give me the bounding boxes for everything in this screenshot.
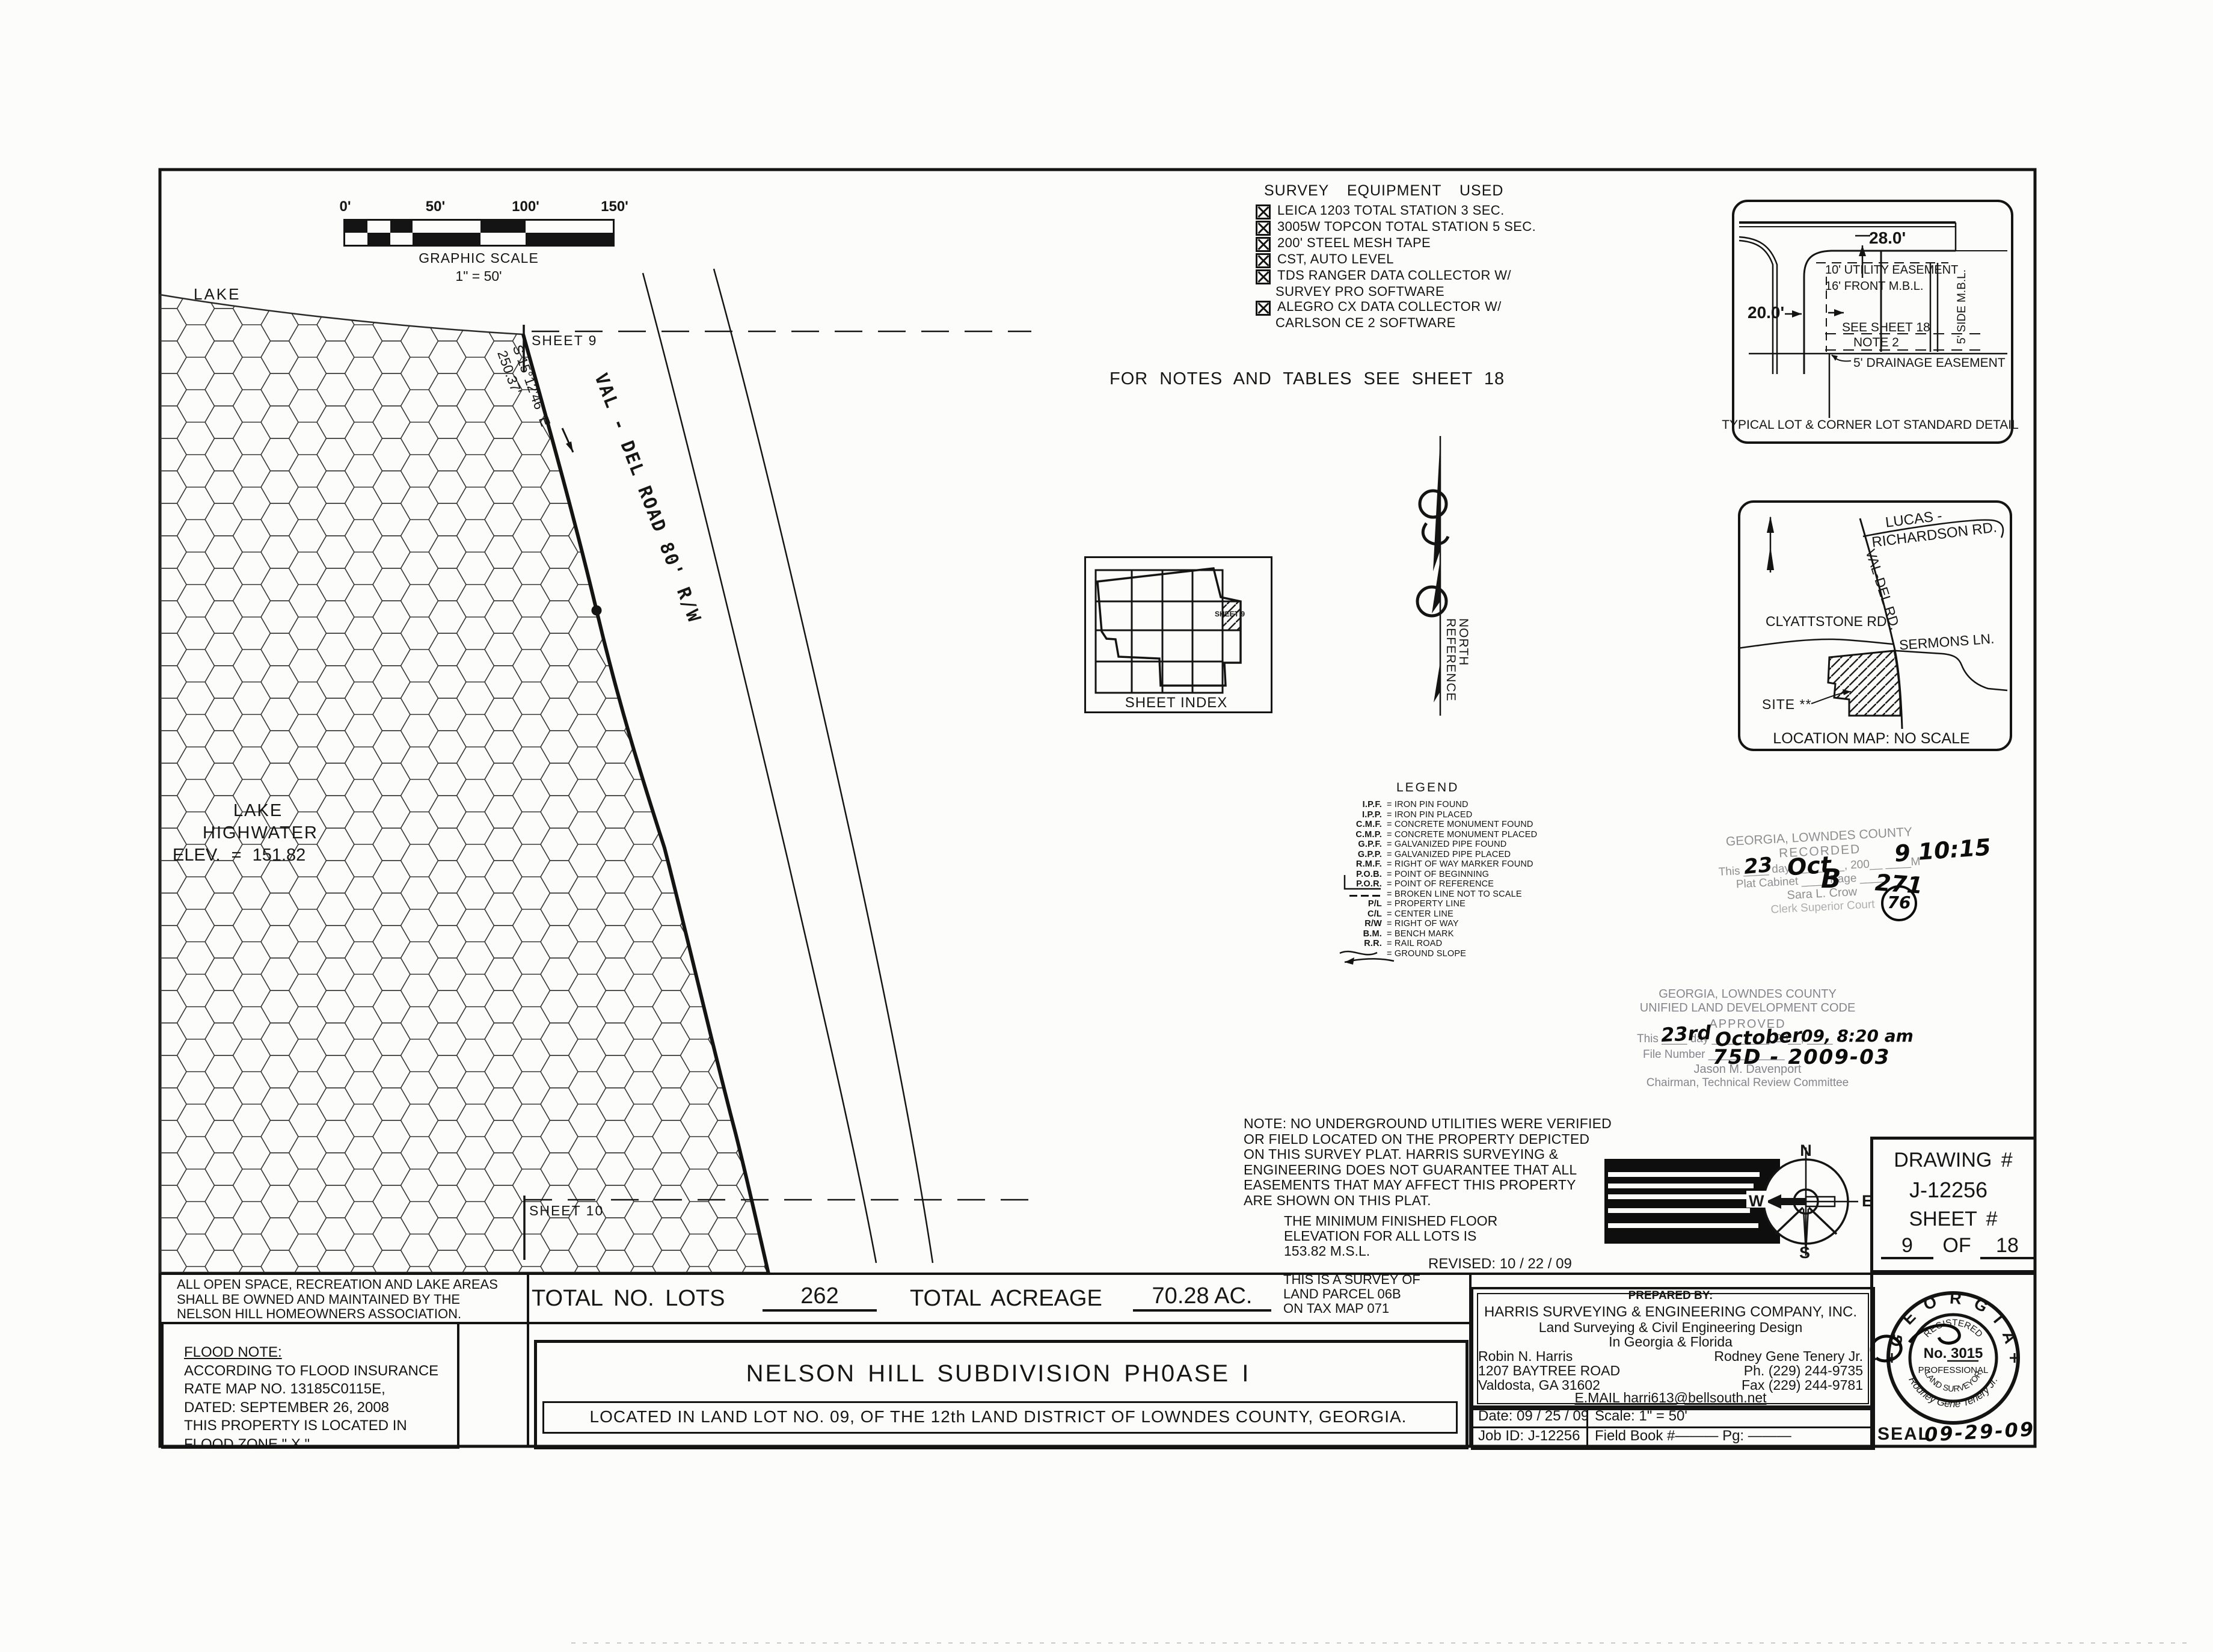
recorded-hw-day: 23 [1743, 853, 1773, 879]
phone: Ph. (229) 244-9735 [1744, 1363, 1863, 1379]
equipment-item: TDS RANGER DATA COLLECTOR W/ [1277, 268, 1511, 284]
scale-caption: GRAPHIC SCALE [419, 250, 539, 266]
recorded-hw-cabinet: B [1821, 864, 1841, 894]
seal-number: No. 3015 [1924, 1345, 1983, 1362]
flood-note-box: FLOOD NOTE: ACCORDING TO FLOOD INSURANCE… [161, 1322, 459, 1449]
scale-bar [343, 219, 615, 247]
legend-abbr: R.M.F. [1348, 859, 1382, 870]
sheet-of: OF [1939, 1234, 1974, 1257]
checkbox-checked-icon [1256, 301, 1271, 316]
legend-abbr: G.P.F. [1348, 840, 1382, 850]
reference-north-line2: NORTH [1457, 618, 1470, 702]
approved-chairman-title: Chairman, Technical Review Committee [1637, 1076, 1858, 1090]
flood-note-line: RATE MAP NO. 13185C0115E, [184, 1380, 438, 1399]
compass-east-label: E [1862, 1192, 1873, 1211]
total-lots-label: TOTAL NO. LOTS [532, 1286, 725, 1312]
prepared-by-label: PREPARED BY: [1628, 1289, 1713, 1303]
equipment-title: SURVEY EQUIPMENT USED [1264, 182, 1592, 200]
survey-of-line: THIS IS A SURVEY OF [1283, 1273, 1420, 1287]
recorded-hw-monogram: 76 [1881, 885, 1917, 921]
legend-text: = BENCH MARK [1387, 929, 1454, 939]
floor-elevation-note: THE MINIMUM FINISHED FLOOR ELEVATION FOR… [1284, 1214, 1497, 1259]
principal-right: Rodney Gene Tenery Jr. [1714, 1348, 1863, 1365]
legend-abbr: C/L [1348, 909, 1382, 920]
compass-rose [1604, 1147, 1858, 1256]
checkbox-checked-icon [1256, 269, 1271, 284]
detail-dim-28: 28.0' [1869, 229, 1906, 248]
detail-caption: TYPICAL LOT & CORNER LOT STANDARD DETAIL [1722, 418, 2019, 432]
company-name: HARRIS SURVEYING & ENGINEERING COMPANY, … [1484, 1304, 1857, 1321]
detail-see-sheet: SEE SHEET 18 [1842, 321, 1930, 335]
locmap-caption: LOCATION MAP: NO SCALE [1773, 730, 1969, 748]
open-space-line: ALL OPEN SPACE, RECREATION AND LAKE AREA… [177, 1277, 498, 1292]
lake-label: LAKE [194, 285, 241, 304]
legend-abbr: R/W [1348, 919, 1382, 929]
legend-abbr: G.P.P. [1348, 850, 1382, 860]
utility-note: NOTE: NO UNDERGROUND UTILITIES WERE VERI… [1244, 1116, 1612, 1208]
utility-note-line: EASEMENTS THAT MAY AFFECT THIS PROPERTY [1244, 1178, 1612, 1193]
approved-hw-yeartime: 09, 8:20 am [1801, 1026, 1914, 1046]
point-marker [592, 606, 601, 615]
legend-text: = CENTER LINE [1387, 909, 1453, 920]
utility-note-line: OR FIELD LOCATED ON THE PROPERTY DEPICTE… [1244, 1132, 1612, 1147]
plat-sheet: G E O R G I A Rodney Gene Tenery Jr. REG… [0, 0, 2213, 1652]
principal-left: Robin N. Harris [1478, 1348, 1573, 1365]
legend-text: = GALVANIZED PIPE PLACED [1387, 850, 1511, 860]
approved-hw-file: 75D - 2009-03 [1713, 1045, 1890, 1069]
legend-abbr: I.P.P. [1348, 810, 1382, 820]
checkbox-checked-icon [1256, 204, 1271, 220]
detail-utility-easement: 10' UTILITY EASEMENT [1825, 263, 1958, 277]
compass-west-label: W [1749, 1192, 1764, 1211]
flood-note-line: THIS PROPERTY IS LOCATED IN [184, 1417, 438, 1436]
scale-tick-50: 50' [426, 198, 445, 215]
legend-text: = GALVANIZED PIPE FOUND [1387, 840, 1506, 850]
drawing-number-value: J-12256 [1909, 1178, 1987, 1203]
detail-note-2: NOTE 2 [1853, 336, 1899, 350]
notes-banner: FOR NOTES AND TABLES SEE SHEET 18 [1110, 369, 1505, 389]
approved-line2: UNIFIED LAND DEVELOPMENT CODE [1637, 1001, 1858, 1015]
equipment-item: ALEGRO CX DATA COLLECTOR W/ [1277, 299, 1502, 316]
flood-note: FLOOD NOTE: ACCORDING TO FLOOD INSURANCE… [184, 1343, 438, 1454]
total-lots-value: 262 [763, 1283, 877, 1312]
compass-north-label: N [1800, 1141, 1812, 1160]
scale-tick-150: 150' [601, 198, 628, 215]
legend-abbr: C.M.F. [1348, 820, 1382, 830]
surveyor-seal: G E O R G I A Rodney Gene Tenery Jr. REG… [1871, 1289, 2021, 1423]
legend-text: = CONCRETE MONUMENT FOUND [1387, 820, 1533, 830]
legend-text: = CONCRETE MONUMENT PLACED [1387, 830, 1537, 840]
legend-abbr: I.P.F. [1348, 800, 1382, 810]
approved-hw-day: 23rd [1660, 1021, 1711, 1046]
date-field: Date: 09 / 25 / 09 [1478, 1408, 1589, 1425]
survey-of-note: THIS IS A SURVEY OF LAND PARCEL 06B ON T… [1283, 1273, 1420, 1316]
utility-note-line: ON THIS SURVEY PLAT. HARRIS SURVEYING & [1244, 1147, 1612, 1162]
approved-line1: GEORGIA, LOWNDES COUNTY [1637, 987, 1858, 1001]
equipment-list: SURVEY EQUIPMENT USED LEICA 1203 TOTAL S… [1256, 182, 1592, 330]
scale-ratio: 1" = 50' [455, 268, 502, 284]
legend-abbr: P/L [1348, 899, 1382, 909]
drawing-box-bottom [1870, 1270, 2035, 1273]
legend: LEGEND I.P.F.= IRON PIN FOUND I.P.P.= IR… [1348, 781, 1601, 959]
equipment-item-cont: SURVEY PRO SOFTWARE [1275, 284, 1444, 299]
field-book-field: Field Book #——— Pg: ——— [1595, 1428, 1791, 1445]
sheet-number-value: 9 [1881, 1234, 1933, 1259]
legend-abbr: B.M. [1348, 929, 1382, 939]
legend-title: LEGEND [1396, 781, 1601, 795]
scale-field: Scale: 1" = 50' [1595, 1408, 1687, 1425]
floor-note-line: ELEVATION FOR ALL LOTS IS [1284, 1229, 1497, 1244]
equipment-item: LEICA 1203 TOTAL STATION 3 SEC. [1277, 203, 1505, 220]
wave-line-icon [1348, 949, 1382, 959]
sheet-index-caption: SHEET INDEX [1125, 695, 1228, 711]
broken-line-icon [1349, 895, 1382, 897]
lake-hw-line1: LAKE [233, 801, 283, 821]
total-acreage-label: TOTAL ACREAGE [910, 1286, 1102, 1312]
legend-abbr: P.O.R. [1348, 879, 1382, 889]
total-acreage-value: 70.28 AC. [1133, 1283, 1271, 1312]
utility-note-line: NOTE: NO UNDERGROUND UTILITIES WERE VERI… [1244, 1116, 1612, 1132]
legend-text: = IRON PIN FOUND [1387, 800, 1469, 810]
legend-abbr: P.O.B. [1348, 870, 1382, 880]
equipment-item: CST, AUTO LEVEL [1277, 252, 1394, 268]
legend-text: = POINT OF REFERENCE [1387, 879, 1494, 889]
legend-text: = GROUND SLOPE [1387, 949, 1466, 959]
locmap-site: SITE ** [1762, 696, 1811, 713]
flood-note-line: DATED: SEPTEMBER 26, 2008 [184, 1399, 438, 1417]
detail-drainage-easement: 5' DRAINAGE EASEMENT [1853, 356, 2006, 370]
utility-note-line: ENGINEERING DOES NOT GUARANTEE THAT ALL [1244, 1162, 1612, 1178]
compass-south-label: S [1799, 1244, 1810, 1262]
sheet-number-label: SHEET # [1909, 1208, 1997, 1231]
lake-hatch-area [160, 295, 769, 1273]
legend-text: = PROPERTY LINE [1387, 899, 1466, 909]
job-id-field: Job ID: J-12256 [1478, 1428, 1580, 1445]
seal-professional: PROFESSIONAL [1918, 1365, 1989, 1375]
survey-of-line: ON TAX MAP 071 [1283, 1301, 1420, 1316]
equipment-item: 3005W TOPCON TOTAL STATION 5 SEC. [1277, 220, 1536, 236]
reference-north-line1: REFERENCE [1444, 618, 1457, 702]
sheet-index-cell-label: SHEET 9 [1215, 610, 1245, 618]
reference-north-label: REFERENCE NORTH [1444, 618, 1470, 702]
divider-left [527, 1273, 529, 1446]
drawing-number-label: DRAWING # [1894, 1149, 2012, 1172]
utility-note-line: ARE SHOWN ON THIS PLAT. [1244, 1193, 1612, 1209]
address-line1: 1207 BAYTREE ROAD [1478, 1363, 1620, 1379]
open-space-line: NELSON HILL HOMEOWNERS ASSOCIATION. [177, 1307, 498, 1322]
checkbox-checked-icon [1256, 253, 1271, 268]
equipment-item: 200' STEEL MESH TAPE [1277, 236, 1431, 252]
floor-note-line: THE MINIMUM FINISHED FLOOR [1284, 1214, 1497, 1229]
company-line2: Land Surveying & Civil Engineering Desig… [1539, 1319, 1803, 1336]
legend-text: = RIGHT OF WAY MARKER FOUND [1387, 859, 1533, 870]
scale-tick-100: 100' [512, 198, 539, 215]
match-line-top-label: SHEET 9 [532, 333, 597, 349]
subdivision-subtitle: LOCATED IN LAND LOT NO. 09, OF THE 12th … [590, 1407, 1407, 1426]
legend-abbr: C.M.P. [1348, 830, 1382, 840]
flood-note-line: FLOOD ZONE " X ". [184, 1436, 438, 1454]
subdivision-title: NELSON HILL SUBDIVISION PH0ASE I [746, 1360, 1251, 1387]
sheet-index-box [1084, 556, 1272, 713]
equipment-item-cont: CARLSON CE 2 SOFTWARE [1275, 316, 1456, 331]
lake-hw-elev: ELEV. = 151.82 [173, 846, 305, 865]
sheet-number-row: 9 OF 18 [1881, 1234, 2034, 1257]
lake-hw-line2: HIGHWATER [203, 823, 318, 843]
email: E.MAIL harri613@bellsouth.net [1574, 1390, 1766, 1406]
legend-abbr: R.R. [1348, 939, 1382, 949]
detail-front-mbl: 16' FRONT M.B.L. [1825, 280, 1924, 293]
legend-text: = IRON PIN PLACED [1387, 810, 1472, 820]
legend-text: = RAIL ROAD [1387, 939, 1442, 949]
legend-text: = BROKEN LINE NOT TO SCALE [1387, 889, 1522, 900]
legend-text: = POINT OF BEGINNING [1387, 870, 1489, 880]
sheet-total-value: 18 [1980, 1234, 2034, 1259]
match-line-bottom-label: SHEET 10 [529, 1203, 604, 1219]
detail-dim-20: 20.0' [1748, 303, 1784, 322]
open-space-note: ALL OPEN SPACE, RECREATION AND LAKE AREA… [177, 1277, 498, 1322]
flood-note-title: FLOOD NOTE: [184, 1343, 438, 1362]
company-line3: In Georgia & Florida [1609, 1334, 1733, 1350]
scale-tick-0: 0' [339, 198, 351, 215]
detail-side-mbl: 5' SIDE M.B.L. [1956, 269, 1969, 344]
locmap-clyattstone: CLYATTSTONE RD. [1766, 613, 1891, 630]
revised-date: REVISED: 10 / 22 / 09 [1428, 1256, 1572, 1273]
checkbox-checked-icon [1256, 237, 1271, 252]
open-space-line: SHALL BE OWNED AND MAINTAINED BY THE [177, 1292, 498, 1307]
checkbox-checked-icon [1256, 221, 1271, 236]
seal-label: SEAL [1877, 1424, 1930, 1445]
survey-of-line: LAND PARCEL 06B [1283, 1287, 1420, 1301]
drawing-box-top [1870, 1137, 2035, 1140]
flood-note-line: ACCORDING TO FLOOD INSURANCE [184, 1362, 438, 1381]
bottom-strip-separator [160, 1273, 2035, 1275]
legend-text: = RIGHT OF WAY [1387, 919, 1459, 929]
